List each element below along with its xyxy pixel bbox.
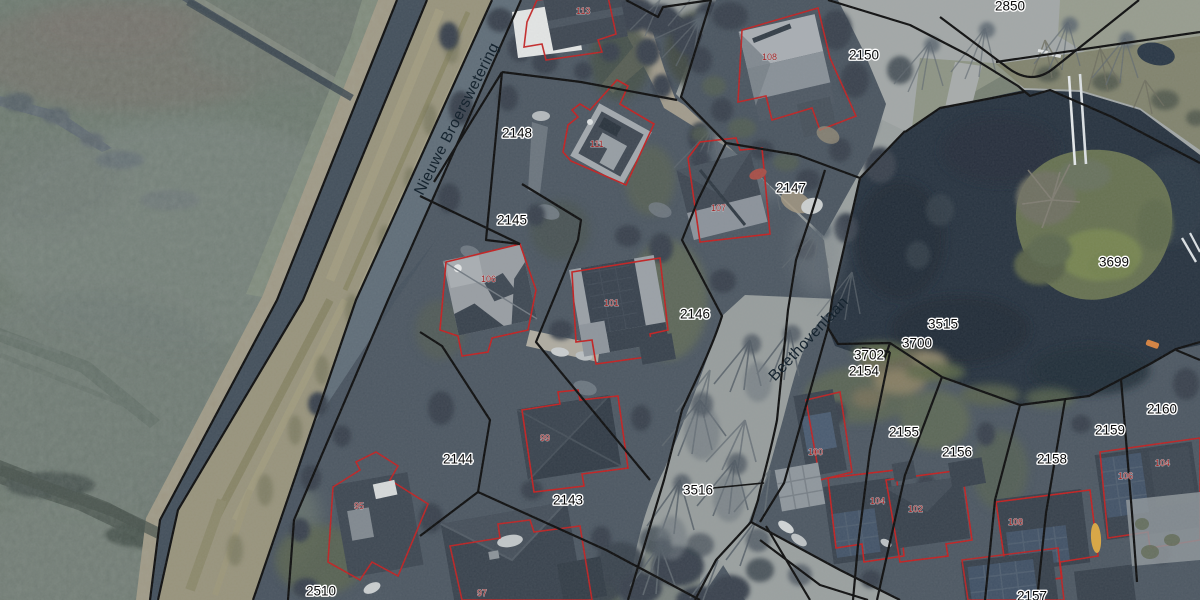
svg-text:3699: 3699 xyxy=(1099,255,1129,270)
svg-text:2155: 2155 xyxy=(889,425,919,440)
svg-text:2144: 2144 xyxy=(443,452,474,467)
svg-text:95: 95 xyxy=(354,501,364,511)
svg-text:2158: 2158 xyxy=(1037,452,1067,467)
svg-text:107: 107 xyxy=(711,203,726,213)
svg-text:106: 106 xyxy=(1118,471,1133,481)
svg-text:2146: 2146 xyxy=(680,307,710,322)
svg-text:2145: 2145 xyxy=(497,213,527,228)
svg-text:3702: 3702 xyxy=(854,348,884,363)
svg-text:108: 108 xyxy=(762,52,777,62)
svg-text:2143: 2143 xyxy=(553,493,583,508)
svg-text:3515: 3515 xyxy=(928,317,958,332)
svg-text:2157: 2157 xyxy=(1017,589,1047,600)
svg-text:2150: 2150 xyxy=(849,48,879,63)
svg-text:2159: 2159 xyxy=(1095,423,1125,438)
svg-text:2154: 2154 xyxy=(849,364,880,379)
svg-text:97: 97 xyxy=(477,588,487,598)
svg-text:104: 104 xyxy=(870,496,885,506)
svg-text:2160: 2160 xyxy=(1147,402,1177,417)
svg-text:106: 106 xyxy=(481,274,496,284)
svg-text:108: 108 xyxy=(1008,517,1023,527)
svg-text:113: 113 xyxy=(576,6,590,16)
svg-text:2850: 2850 xyxy=(995,0,1025,14)
svg-text:111: 111 xyxy=(590,139,604,149)
svg-text:104: 104 xyxy=(1155,458,1170,468)
svg-text:3700: 3700 xyxy=(902,336,932,351)
svg-text:3516: 3516 xyxy=(683,483,713,498)
svg-text:2156: 2156 xyxy=(942,445,972,460)
svg-text:100: 100 xyxy=(808,447,823,457)
svg-text:2148: 2148 xyxy=(502,126,532,141)
svg-text:102: 102 xyxy=(908,504,923,514)
svg-text:2510: 2510 xyxy=(306,584,336,599)
svg-text:2147: 2147 xyxy=(776,181,806,196)
svg-text:99: 99 xyxy=(540,433,550,443)
svg-text:101: 101 xyxy=(604,298,619,308)
